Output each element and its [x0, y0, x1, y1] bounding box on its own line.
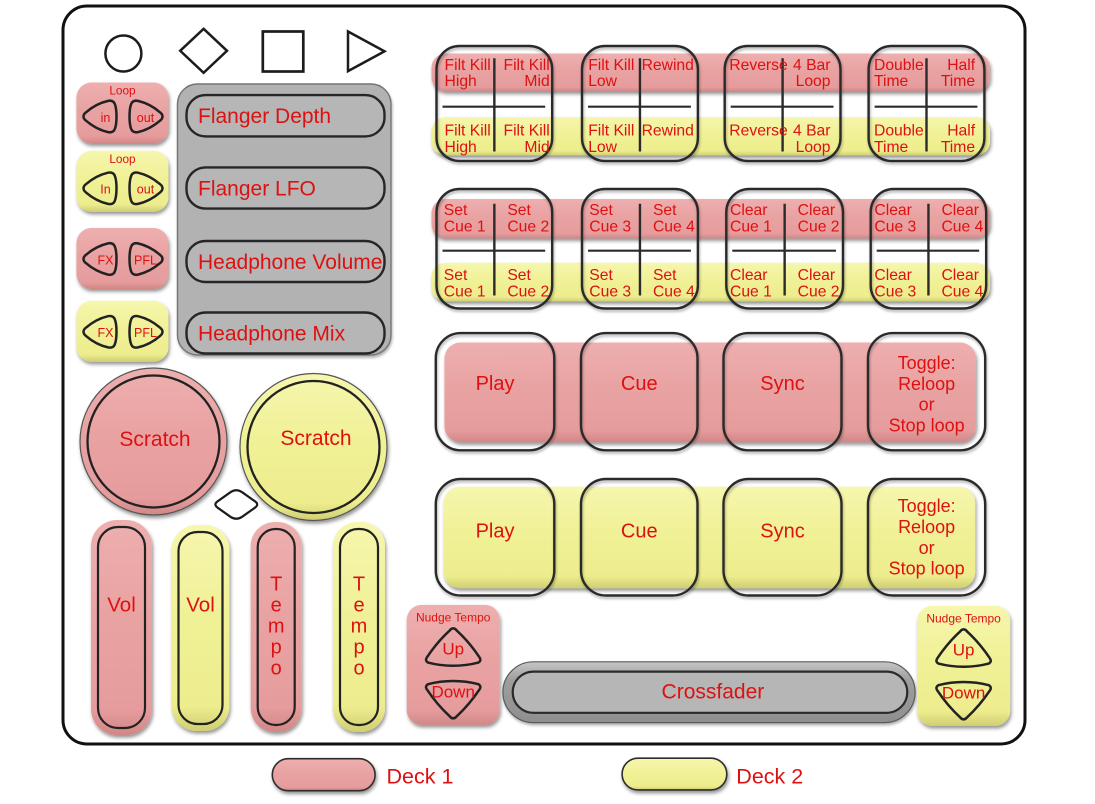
svg-text:ClearCue 2: ClearCue 2 — [798, 202, 840, 235]
svg-text:Headphone Volume: Headphone Volume — [198, 251, 382, 274]
svg-text:Flanger LFO: Flanger LFO — [198, 177, 316, 200]
svg-text:Down: Down — [942, 683, 985, 702]
svg-text:Headphone Mix: Headphone Mix — [198, 322, 346, 345]
svg-text:Vol: Vol — [107, 594, 136, 617]
svg-text:Rewind: Rewind — [642, 122, 694, 139]
svg-text:Up: Up — [953, 640, 975, 659]
svg-text:Up: Up — [442, 639, 464, 658]
svg-text:ClearCue 2: ClearCue 2 — [798, 267, 840, 300]
svg-text:Play: Play — [476, 373, 515, 395]
svg-text:ClearCue 3: ClearCue 3 — [874, 202, 916, 235]
svg-text:Deck 2: Deck 2 — [736, 765, 803, 789]
svg-text:Sync: Sync — [760, 373, 804, 395]
svg-text:4 BarLoop: 4 BarLoop — [793, 57, 831, 90]
svg-text:ClearCue 4: ClearCue 4 — [941, 267, 983, 300]
svg-text:Scratch: Scratch — [280, 427, 351, 450]
svg-text:Sync: Sync — [760, 521, 804, 543]
svg-text:ClearCue 4: ClearCue 4 — [941, 202, 983, 235]
svg-text:in: in — [101, 111, 111, 125]
svg-text:Nudge Tempo: Nudge Tempo — [416, 610, 491, 624]
svg-text:ClearCue 1: ClearCue 1 — [730, 202, 772, 235]
svg-text:Reverse: Reverse — [729, 57, 788, 74]
svg-text:Rewind: Rewind — [642, 57, 694, 74]
svg-text:Scratch: Scratch — [119, 428, 190, 451]
svg-text:Loop: Loop — [109, 84, 136, 98]
svg-text:PFL: PFL — [134, 326, 157, 340]
svg-text:Vol: Vol — [186, 594, 215, 617]
svg-text:Flanger Depth: Flanger Depth — [198, 105, 331, 128]
svg-text:Loop: Loop — [109, 152, 136, 166]
svg-text:Deck 1: Deck 1 — [387, 765, 454, 789]
svg-text:Reverse: Reverse — [729, 122, 788, 139]
svg-text:out: out — [137, 183, 155, 197]
svg-text:Crossfader: Crossfader — [662, 681, 765, 704]
svg-text:ClearCue 3: ClearCue 3 — [874, 267, 916, 300]
svg-text:FX: FX — [98, 326, 115, 340]
svg-text:Cue: Cue — [621, 521, 658, 543]
svg-text:out: out — [137, 111, 155, 125]
svg-text:Cue: Cue — [621, 373, 658, 395]
svg-text:Play: Play — [476, 521, 515, 543]
svg-text:In: In — [100, 183, 110, 197]
svg-text:4 BarLoop: 4 BarLoop — [793, 122, 831, 155]
svg-text:ClearCue 1: ClearCue 1 — [730, 267, 772, 300]
svg-text:Nudge Tempo: Nudge Tempo — [926, 611, 1001, 625]
svg-text:PFL: PFL — [134, 253, 157, 267]
svg-text:FX: FX — [98, 253, 115, 267]
svg-text:Down: Down — [431, 682, 474, 701]
